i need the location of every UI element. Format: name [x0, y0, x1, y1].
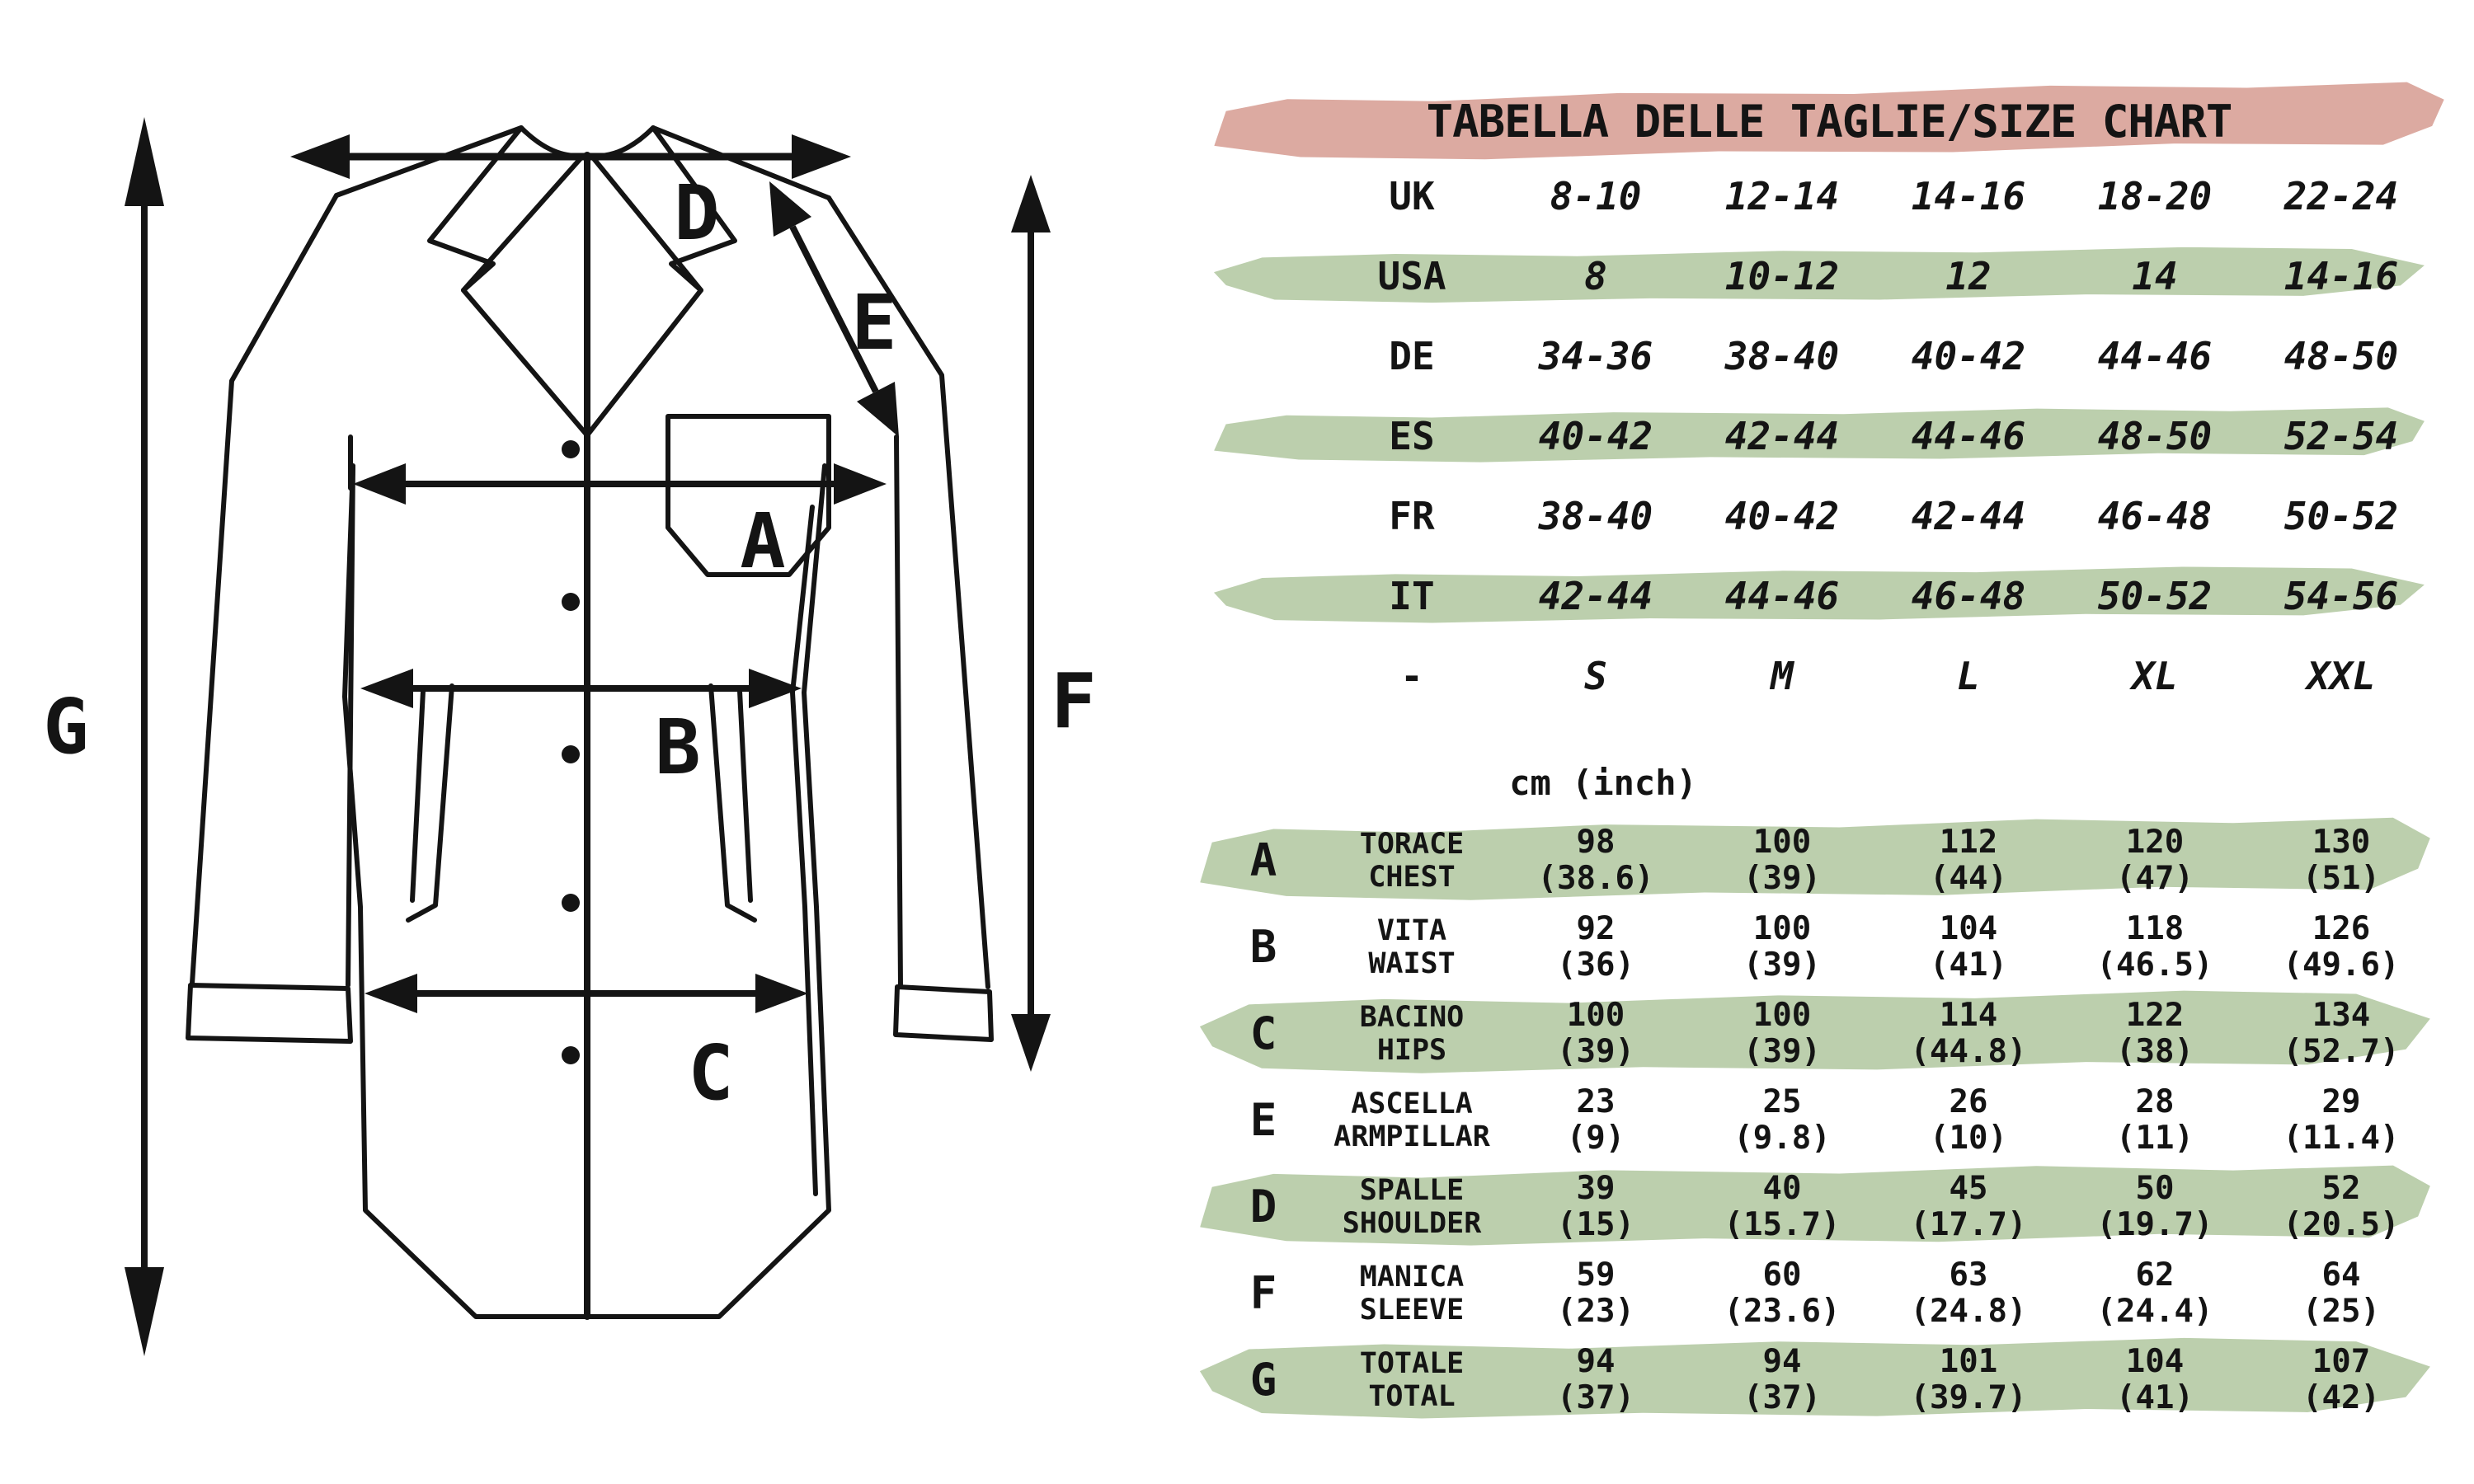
cell: 134(52.7) — [2248, 998, 2434, 1070]
letter-g: G — [43, 683, 88, 771]
cell: 40-42 — [1503, 416, 1689, 456]
measure-label: ASCELLAARMPILLAR — [1321, 1087, 1503, 1153]
cm-value: 52 — [2248, 1171, 2434, 1207]
label-it: MANICA — [1321, 1261, 1503, 1294]
cell: 62(24.4) — [2062, 1257, 2248, 1330]
label-it: SPALLE — [1321, 1174, 1503, 1207]
cell: 23(9) — [1503, 1084, 1689, 1157]
cell: 29(11.4) — [2248, 1084, 2434, 1157]
region-label: ES — [1321, 416, 1503, 456]
label-it: VITA — [1321, 914, 1503, 947]
cm-value: 25 — [1689, 1084, 1875, 1120]
measure-letter: D — [1206, 1185, 1321, 1229]
measure-label: TORACECHEST — [1321, 828, 1503, 894]
letter-f: F — [1051, 657, 1096, 745]
right-hip-pocket — [711, 686, 755, 920]
inch-value: (46.5) — [2062, 947, 2248, 984]
cell: 26(10) — [1875, 1084, 2062, 1157]
inch-value: (9) — [1503, 1120, 1689, 1157]
inch-value: (39) — [1689, 861, 1875, 897]
inch-value: (39.7) — [1875, 1380, 2062, 1416]
cell: 54-56 — [2248, 576, 2434, 616]
cell: 63(24.8) — [1875, 1257, 2062, 1330]
cm-value: 23 — [1503, 1084, 1689, 1120]
button — [562, 1046, 580, 1064]
cell: 45(17.7) — [1875, 1171, 2062, 1243]
cm-value: 28 — [2062, 1084, 2248, 1120]
inch-value: (38) — [2062, 1034, 2248, 1070]
measure-letter: F — [1206, 1271, 1321, 1316]
cm-value: 134 — [2248, 998, 2434, 1034]
label-en: SHOULDER — [1321, 1207, 1503, 1240]
cm-value: 104 — [1875, 911, 2062, 947]
letter-d: D — [674, 169, 719, 257]
size-row-fr: FR 38-40 40-42 42-44 46-48 50-52 — [1206, 496, 2434, 536]
inch-value: (25) — [2248, 1294, 2434, 1330]
cm-value: 94 — [1689, 1344, 1875, 1380]
cell: 50-52 — [2248, 496, 2434, 536]
cell: 50-52 — [2062, 576, 2248, 616]
cell: 112(44) — [1875, 824, 2062, 897]
label-en: WAIST — [1321, 947, 1503, 980]
cell: 101(39.7) — [1875, 1344, 2062, 1416]
inch-value: (15) — [1503, 1207, 1689, 1243]
cm-value: 114 — [1875, 998, 2062, 1034]
cm-value: 92 — [1503, 911, 1689, 947]
size-row-de: DE 34-36 38-40 40-42 44-46 48-50 — [1206, 336, 2434, 376]
region-label: - — [1321, 656, 1503, 696]
cell: 104(41) — [2062, 1344, 2248, 1416]
inch-value: (47) — [2062, 861, 2248, 897]
inch-value: (52.7) — [2248, 1034, 2434, 1070]
cm-value: 62 — [2062, 1257, 2248, 1294]
cell: XL — [2062, 656, 2248, 696]
cell: 12-14 — [1689, 176, 1875, 216]
inch-value: (49.6) — [2248, 947, 2434, 984]
right-sleeve-inner — [896, 437, 901, 986]
cell: 25(9.8) — [1689, 1084, 1875, 1157]
cell: 107(42) — [2248, 1344, 2434, 1416]
cell: 122(38) — [2062, 998, 2248, 1070]
cell: 10-12 — [1689, 256, 1875, 296]
cm-value: 98 — [1503, 824, 1689, 861]
cell: 44-46 — [1689, 576, 1875, 616]
left-sleeve-outer — [192, 195, 336, 984]
region-label: FR — [1321, 496, 1503, 536]
cell: 48-50 — [2248, 336, 2434, 376]
inch-value: (37) — [1503, 1380, 1689, 1416]
cell: 100(39) — [1503, 998, 1689, 1070]
inch-value: (24.8) — [1875, 1294, 2062, 1330]
measure-letter: C — [1206, 1012, 1321, 1056]
measure-letter: E — [1206, 1098, 1321, 1143]
cell: 94(37) — [1503, 1344, 1689, 1416]
size-row-international: - S M L XL XXL — [1206, 656, 2434, 696]
arrowhead — [353, 463, 406, 505]
cell: 14-16 — [2248, 256, 2434, 296]
label-it: BACINO — [1321, 1001, 1503, 1034]
cell: M — [1689, 656, 1875, 696]
inch-value: (44) — [1875, 861, 2062, 897]
letter-b: B — [655, 703, 700, 791]
cm-value: 104 — [2062, 1344, 2248, 1380]
cm-value: 101 — [1875, 1344, 2062, 1380]
label-en: CHEST — [1321, 861, 1503, 894]
inch-value: (41) — [2062, 1380, 2248, 1416]
arrowhead — [360, 669, 413, 708]
arrowhead — [1011, 175, 1051, 232]
cm-value: 112 — [1875, 824, 2062, 861]
region-label: USA — [1321, 256, 1503, 296]
inch-value: (11) — [2062, 1120, 2248, 1157]
measure-letters: A B C D E F G — [43, 169, 1096, 1117]
cell: 28(11) — [2062, 1084, 2248, 1157]
measure-label: MANICASLEEVE — [1321, 1261, 1503, 1327]
cell: 40-42 — [1689, 496, 1875, 536]
measure-label: SPALLESHOULDER — [1321, 1174, 1503, 1240]
inch-value: (23) — [1503, 1294, 1689, 1330]
cm-value: 118 — [2062, 911, 2248, 947]
inch-value: (38.6) — [1503, 861, 1689, 897]
measure-row-total: G TOTALETOTAL 94(37) 94(37) 101(39.7) 10… — [1206, 1341, 2434, 1420]
cell: 38-40 — [1689, 336, 1875, 376]
arrowhead — [290, 134, 350, 179]
cm-value: 126 — [2248, 911, 2434, 947]
left-cuff — [188, 985, 350, 1041]
label-it: TOTALE — [1321, 1347, 1503, 1380]
label-en: TOTAL — [1321, 1380, 1503, 1413]
cell: 59(23) — [1503, 1257, 1689, 1330]
size-row-uk: UK 8-10 12-14 14-16 18-20 22-24 — [1206, 176, 2434, 216]
garment-diagram: A B C D E F G — [0, 0, 1196, 1484]
measure-letter: B — [1206, 925, 1321, 970]
cell: 52(20.5) — [2248, 1171, 2434, 1243]
cell: 130(51) — [2248, 824, 2434, 897]
inch-value: (37) — [1689, 1380, 1875, 1416]
cell: S — [1503, 656, 1689, 696]
cell: 34-36 — [1503, 336, 1689, 376]
arrowhead — [365, 974, 417, 1013]
arrowhead — [755, 974, 808, 1013]
arrowhead — [125, 117, 164, 206]
cell: 100(39) — [1689, 911, 1875, 984]
inch-value: (39) — [1503, 1034, 1689, 1070]
cell: 52-54 — [2248, 416, 2434, 456]
arrowhead — [1011, 1014, 1051, 1072]
cell: 22-24 — [2248, 176, 2434, 216]
measure-row-chest: A TORACECHEST 98(38.6) 100(39) 112(44) 1… — [1206, 821, 2434, 900]
cell: 8-10 — [1503, 176, 1689, 216]
inch-value: (42) — [2248, 1380, 2434, 1416]
cm-value: 100 — [1689, 998, 1875, 1034]
measure-row-shoulder: D SPALLESHOULDER 39(15) 40(15.7) 45(17.7… — [1206, 1167, 2434, 1247]
inch-value: (39) — [1689, 947, 1875, 984]
cell: 44-46 — [1875, 416, 2062, 456]
cm-value: 122 — [2062, 998, 2248, 1034]
cell: 98(38.6) — [1503, 824, 1689, 897]
shoulder-collar-line — [336, 128, 829, 198]
cm-value: 50 — [2062, 1171, 2248, 1207]
inch-value: (24.4) — [2062, 1294, 2248, 1330]
cell: 48-50 — [2062, 416, 2248, 456]
button — [562, 894, 580, 912]
label-it: TORACE — [1321, 828, 1503, 861]
label-it: ASCELLA — [1321, 1087, 1503, 1120]
cell: L — [1875, 656, 2062, 696]
size-row-usa: USA 8 10-12 12 14 14-16 — [1206, 256, 2434, 296]
inch-value: (20.5) — [2248, 1207, 2434, 1243]
letter-c: C — [688, 1029, 733, 1117]
cell: 50(19.7) — [2062, 1171, 2248, 1243]
cell: 44-46 — [2062, 336, 2248, 376]
cm-value: 26 — [1875, 1084, 2062, 1120]
cell: 18-20 — [2062, 176, 2248, 216]
cell: 114(44.8) — [1875, 998, 2062, 1070]
size-row-es: ES 40-42 42-44 44-46 48-50 52-54 — [1206, 416, 2434, 456]
cm-value: 107 — [2248, 1344, 2434, 1380]
inch-value: (36) — [1503, 947, 1689, 984]
cell: 100(39) — [1689, 998, 1875, 1070]
inch-value: (10) — [1875, 1120, 2062, 1157]
cm-value: 63 — [1875, 1257, 2062, 1294]
measure-label: BACINOHIPS — [1321, 1001, 1503, 1067]
cell: 42-44 — [1503, 576, 1689, 616]
cell: 12 — [1875, 256, 2062, 296]
button — [562, 745, 580, 763]
inch-value: (11.4) — [2248, 1120, 2434, 1157]
cm-value: 100 — [1689, 911, 1875, 947]
inch-value: (23.6) — [1689, 1294, 1875, 1330]
letter-e: E — [851, 279, 896, 367]
cm-value: 39 — [1503, 1171, 1689, 1207]
cell: 126(49.6) — [2248, 911, 2434, 984]
inch-value: (19.7) — [2062, 1207, 2248, 1243]
buttons — [562, 440, 580, 1064]
cell: 39(15) — [1503, 1171, 1689, 1243]
letter-a: A — [740, 497, 785, 585]
size-row-it: IT 42-44 44-46 46-48 50-52 54-56 — [1206, 576, 2434, 616]
cm-value: 100 — [1503, 998, 1689, 1034]
page-title: TABELLA DELLE TAGLIE/SIZE CHART — [1214, 97, 2444, 147]
cell: 46-48 — [1875, 576, 2062, 616]
cm-value: 40 — [1689, 1171, 1875, 1207]
size-chart-infographic: A B C D E F G TABELLA DELLE TAGLIE/SIZE … — [0, 0, 2474, 1484]
measure-label: TOTALETOTAL — [1321, 1347, 1503, 1413]
cm-value: 120 — [2062, 824, 2248, 861]
cm-value: 100 — [1689, 824, 1875, 861]
label-en: ARMPILLAR — [1321, 1120, 1503, 1153]
measure-row-armpit: E ASCELLAARMPILLAR 23(9) 25(9.8) 26(10) … — [1206, 1081, 2434, 1160]
cell: 8 — [1503, 256, 1689, 296]
inch-value: (17.7) — [1875, 1207, 2062, 1243]
button — [562, 593, 580, 611]
cell: 120(47) — [2062, 824, 2248, 897]
cell: 64(25) — [2248, 1257, 2434, 1330]
inch-value: (41) — [1875, 947, 2062, 984]
measure-row-waist: B VITAWAIST 92(36) 100(39) 104(41) 118(4… — [1206, 908, 2434, 987]
measure-row-sleeve: F MANICASLEEVE 59(23) 60(23.6) 63(24.8) … — [1206, 1254, 2434, 1333]
cell: 60(23.6) — [1689, 1257, 1875, 1330]
cell: XXL — [2248, 656, 2434, 696]
cm-value: 45 — [1875, 1171, 2062, 1207]
inch-value: (44.8) — [1875, 1034, 2062, 1070]
inch-value: (51) — [2248, 861, 2434, 897]
measure-letter: G — [1206, 1358, 1321, 1402]
button — [562, 440, 580, 458]
cell: 14-16 — [1875, 176, 2062, 216]
label-en: HIPS — [1321, 1034, 1503, 1067]
left-hip-pocket — [408, 686, 452, 920]
cell: 38-40 — [1503, 496, 1689, 536]
cm-value: 60 — [1689, 1257, 1875, 1294]
cell: 92(36) — [1503, 911, 1689, 984]
cell: 100(39) — [1689, 824, 1875, 897]
cell: 42-44 — [1689, 416, 1875, 456]
cm-value: 59 — [1503, 1257, 1689, 1294]
right-cuff — [896, 987, 991, 1040]
inch-value: (39) — [1689, 1034, 1875, 1070]
region-label: DE — [1321, 336, 1503, 376]
unit-label: cm (inch) — [1397, 763, 1809, 803]
cell: 42-44 — [1875, 496, 2062, 536]
cm-value: 64 — [2248, 1257, 2434, 1294]
inch-value: (9.8) — [1689, 1120, 1875, 1157]
left-collar — [430, 128, 587, 435]
arrowhead — [834, 463, 887, 505]
cell: 118(46.5) — [2062, 911, 2248, 984]
cell: 104(41) — [1875, 911, 2062, 984]
cell: 40(15.7) — [1689, 1171, 1875, 1243]
cm-value: 130 — [2248, 824, 2434, 861]
label-en: SLEEVE — [1321, 1294, 1503, 1327]
region-label: UK — [1321, 176, 1503, 216]
cell: 94(37) — [1689, 1344, 1875, 1416]
arrowhead — [125, 1267, 164, 1356]
inch-value: (15.7) — [1689, 1207, 1875, 1243]
region-label: IT — [1321, 576, 1503, 616]
measure-label: VITAWAIST — [1321, 914, 1503, 980]
cm-value: 94 — [1503, 1344, 1689, 1380]
cm-value: 29 — [2248, 1084, 2434, 1120]
measure-letter: A — [1206, 838, 1321, 883]
cell: 46-48 — [2062, 496, 2248, 536]
cell: 14 — [2062, 256, 2248, 296]
measure-row-hips: C BACINOHIPS 100(39) 100(39) 114(44.8) 1… — [1206, 994, 2434, 1073]
cell: 40-42 — [1875, 336, 2062, 376]
arrowhead — [792, 134, 851, 179]
